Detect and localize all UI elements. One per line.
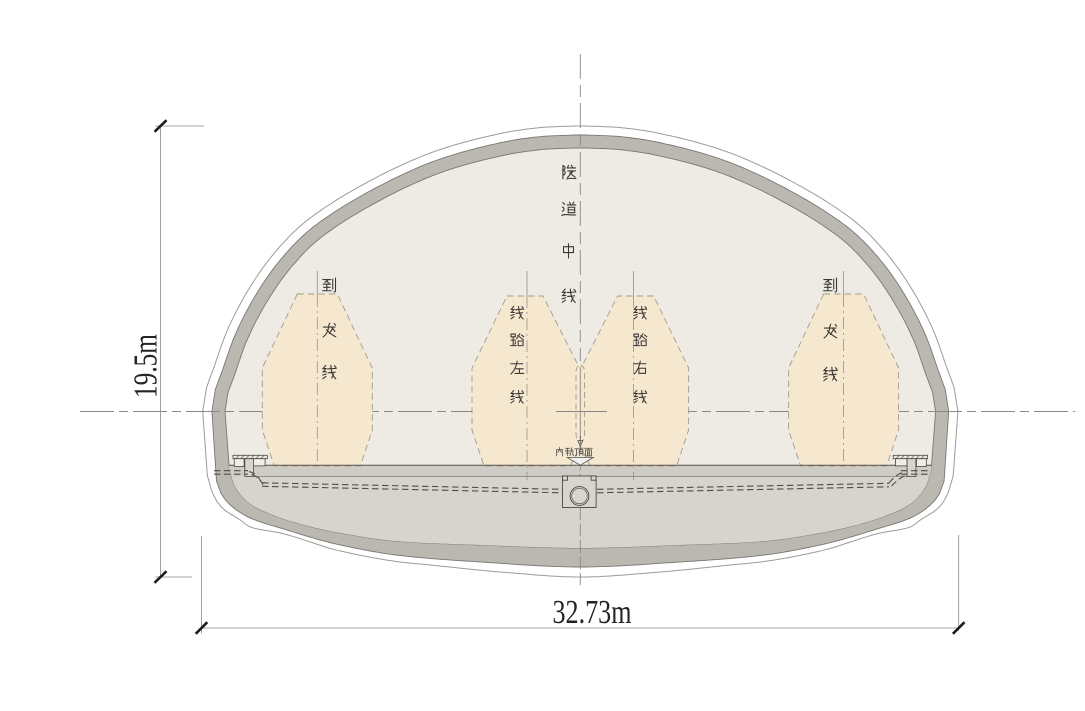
svg-text:32.73m: 32.73m — [553, 594, 632, 631]
svg-text:19.5m: 19.5m — [128, 334, 165, 398]
